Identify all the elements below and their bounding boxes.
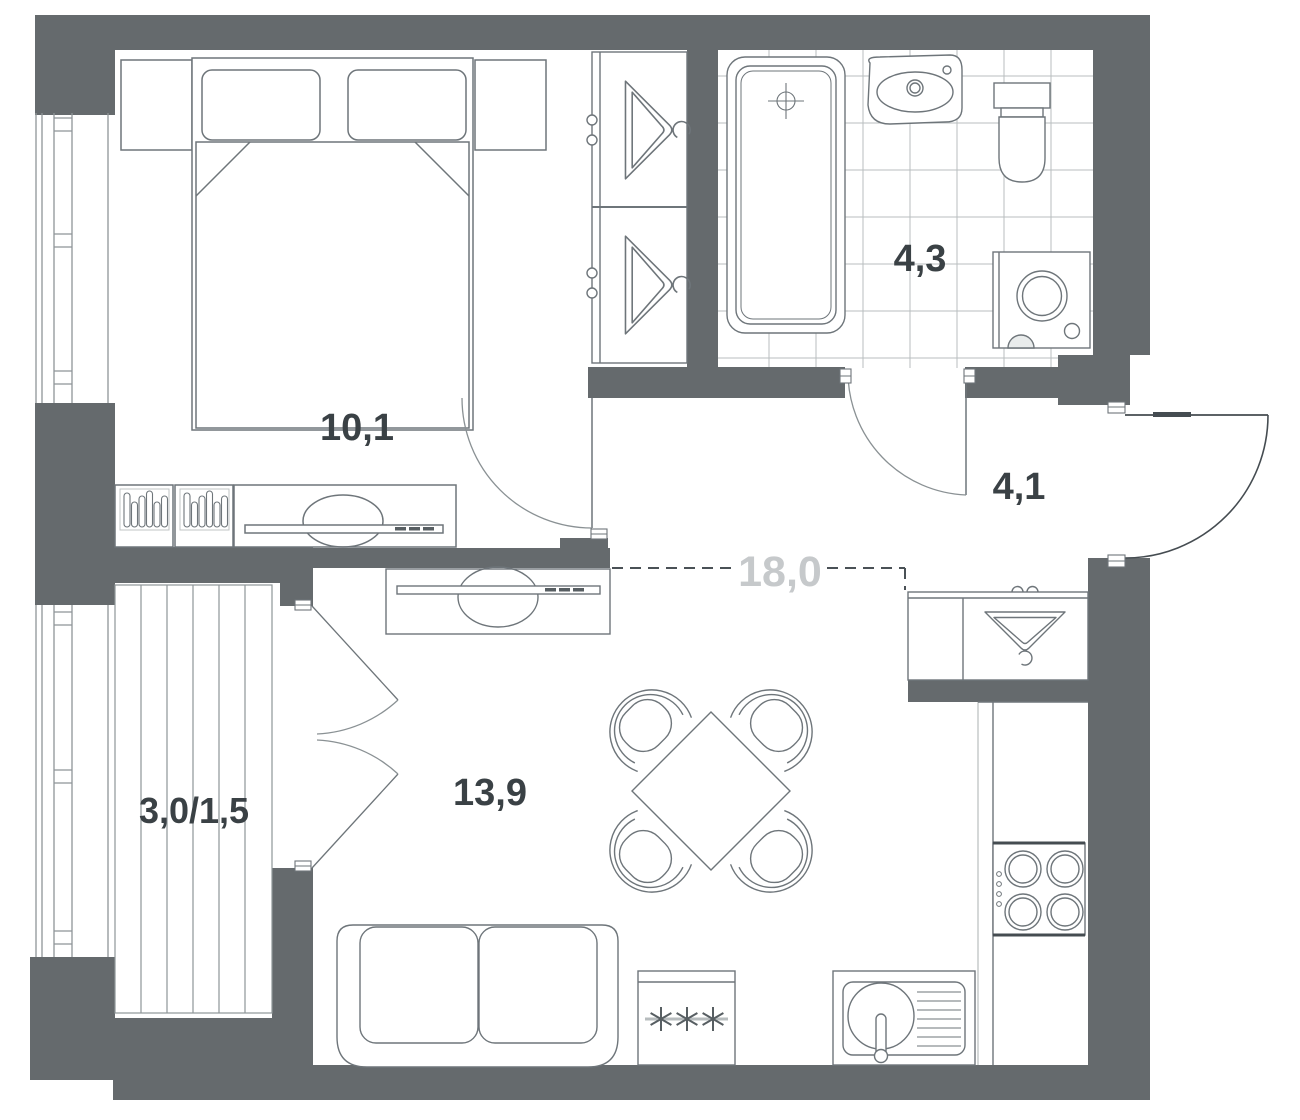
floor-plan-drawing: 10,1 4,3 4,1 18,0 13,9 3,0/1,5	[0, 0, 1300, 1120]
kitchen-sink	[833, 971, 975, 1065]
entrance-door	[1108, 402, 1268, 567]
bedroom-area-label: 10,1	[320, 407, 394, 449]
bathroom-door	[840, 369, 975, 495]
living-tv-stand	[386, 567, 610, 634]
hook-icon	[1027, 587, 1038, 593]
coat-closet	[908, 587, 1088, 681]
bedroom-tv-console	[234, 485, 456, 547]
combined-area-label: 18,0	[738, 548, 822, 596]
fridge-freezer	[638, 971, 735, 1065]
wall-right-lower	[1088, 558, 1150, 1100]
wall-pier-left-middle	[35, 403, 115, 605]
bedroom-window	[36, 113, 108, 403]
bathtub	[727, 57, 845, 333]
wall-top	[35, 15, 1150, 50]
sofa	[337, 925, 618, 1067]
wall-wardrobe-bathroom-divider	[687, 50, 718, 398]
wall-right-upper	[1093, 15, 1150, 355]
balcony-area-label: 3,0/1,5	[139, 790, 249, 831]
mattress	[196, 142, 469, 428]
wall-living-left-lower	[272, 868, 313, 1065]
wall-bedroom-bottom	[113, 547, 313, 583]
wall-living-top-step	[560, 538, 608, 568]
wall-pier-top-left	[35, 15, 115, 115]
floor-plan: 10,1 4,3 4,1 18,0 13,9 3,0/1,5	[0, 0, 1300, 1120]
bathroom-area-label: 4,3	[894, 238, 947, 280]
balcony-french-doors	[295, 600, 398, 871]
nightstand-left	[121, 60, 192, 150]
wall-hallway-top-left	[588, 367, 845, 398]
washbasin	[868, 55, 962, 124]
living-kitchen-area-label: 13,9	[453, 772, 527, 814]
dresser-left	[115, 485, 173, 547]
balcony-glazing	[36, 605, 108, 957]
cooktop	[993, 843, 1085, 935]
washing-machine	[993, 252, 1090, 348]
wall-closet-stub	[908, 680, 1088, 702]
hallway-area-label: 4,1	[993, 466, 1046, 508]
nightstand-right	[475, 60, 546, 150]
pillow-left	[202, 70, 320, 140]
dresser-right	[175, 485, 233, 547]
wall-bottom	[113, 1065, 1150, 1100]
double-bed	[192, 58, 473, 430]
sofa-cushion	[479, 927, 597, 1043]
sofa-cushion	[360, 927, 478, 1043]
toilet	[994, 83, 1050, 182]
dining-table	[632, 712, 790, 870]
wall-hallway-top-right	[965, 367, 1093, 398]
pillow-right	[348, 70, 466, 140]
bedroom-door	[462, 398, 607, 539]
hook-icon	[1012, 587, 1023, 593]
